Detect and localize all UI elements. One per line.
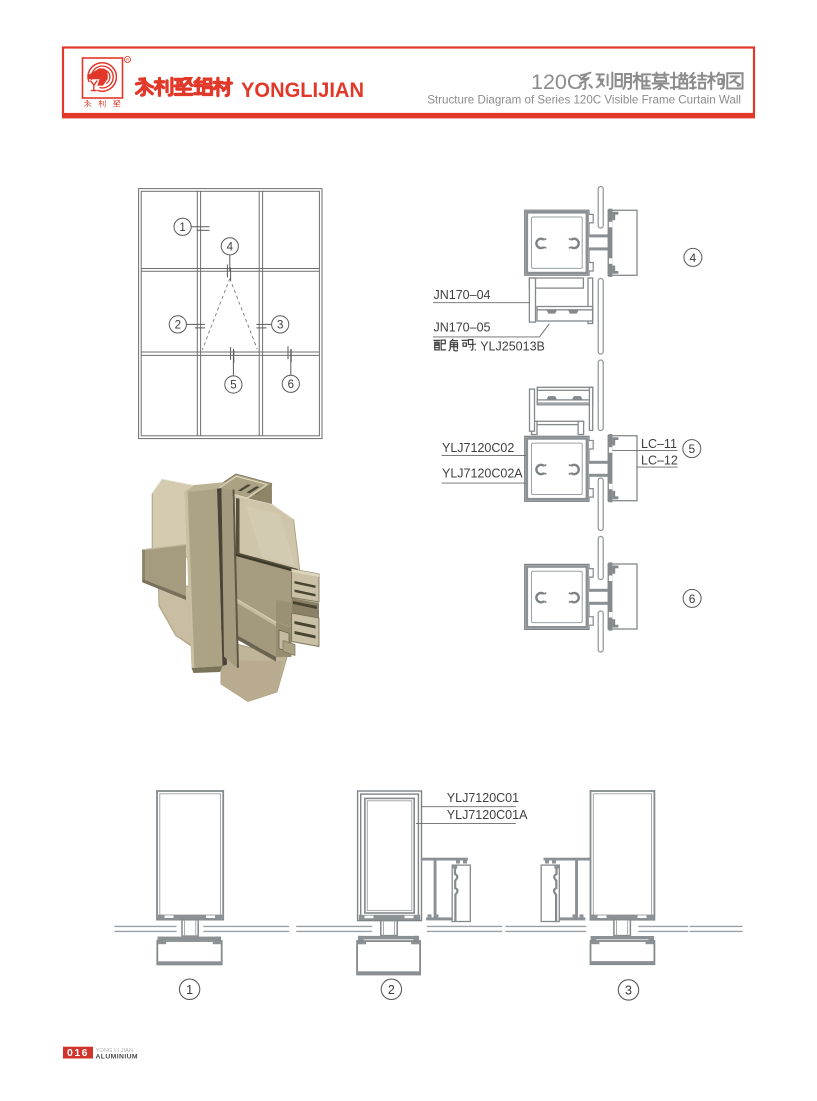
svg-text:YLJ7120C01A: YLJ7120C01A [447, 808, 528, 822]
svg-text:JN170–04: JN170–04 [434, 288, 491, 302]
svg-text:YONGLIJIAN: YONGLIJIAN [241, 79, 364, 102]
svg-text:: YLJ25013B: : YLJ25013B [474, 339, 545, 353]
svg-text:YLJ7120C02A: YLJ7120C02A [442, 467, 523, 481]
svg-text:4: 4 [690, 251, 697, 265]
svg-text:6: 6 [689, 592, 696, 606]
svg-text:LC–12: LC–12 [641, 454, 678, 468]
svg-text:4: 4 [227, 242, 234, 254]
svg-text:YLJ7120C02: YLJ7120C02 [442, 441, 514, 455]
svg-text:2: 2 [175, 320, 181, 332]
svg-text:016: 016 [67, 1047, 89, 1059]
svg-text:6: 6 [288, 379, 294, 391]
svg-text:JN170–05: JN170–05 [434, 321, 491, 335]
svg-text:1: 1 [186, 983, 193, 997]
svg-text:ALUMINIUM: ALUMINIUM [96, 1054, 139, 1061]
svg-text:120C: 120C [531, 70, 582, 94]
svg-text:5: 5 [688, 442, 695, 456]
svg-text:YLJ7120C01: YLJ7120C01 [447, 791, 519, 805]
svg-text:1: 1 [179, 222, 185, 234]
svg-text:3: 3 [625, 984, 632, 998]
svg-text:LC–11: LC–11 [641, 437, 677, 451]
svg-text:3: 3 [277, 320, 283, 332]
svg-text:5: 5 [230, 380, 236, 392]
svg-text:Structure Diagram of Series 12: Structure Diagram of Series 120C Visible… [427, 94, 741, 107]
svg-text:2: 2 [388, 983, 395, 997]
